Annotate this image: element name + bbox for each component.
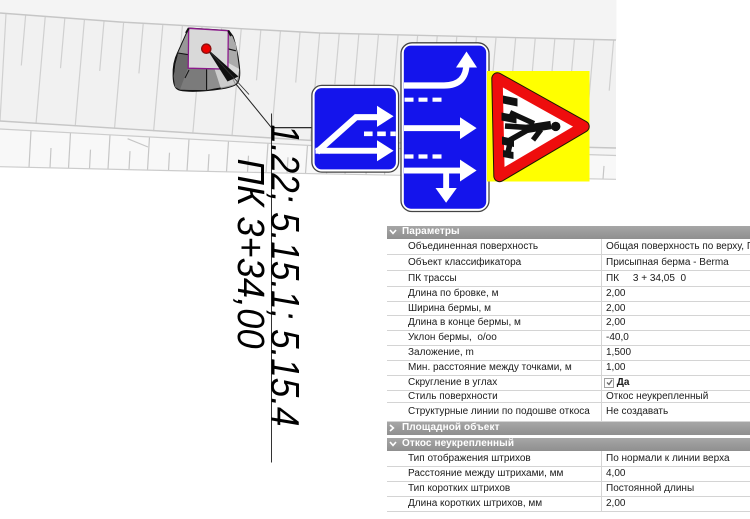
svg-text:ПК 3+34,00: ПК 3+34,00: [229, 159, 271, 349]
